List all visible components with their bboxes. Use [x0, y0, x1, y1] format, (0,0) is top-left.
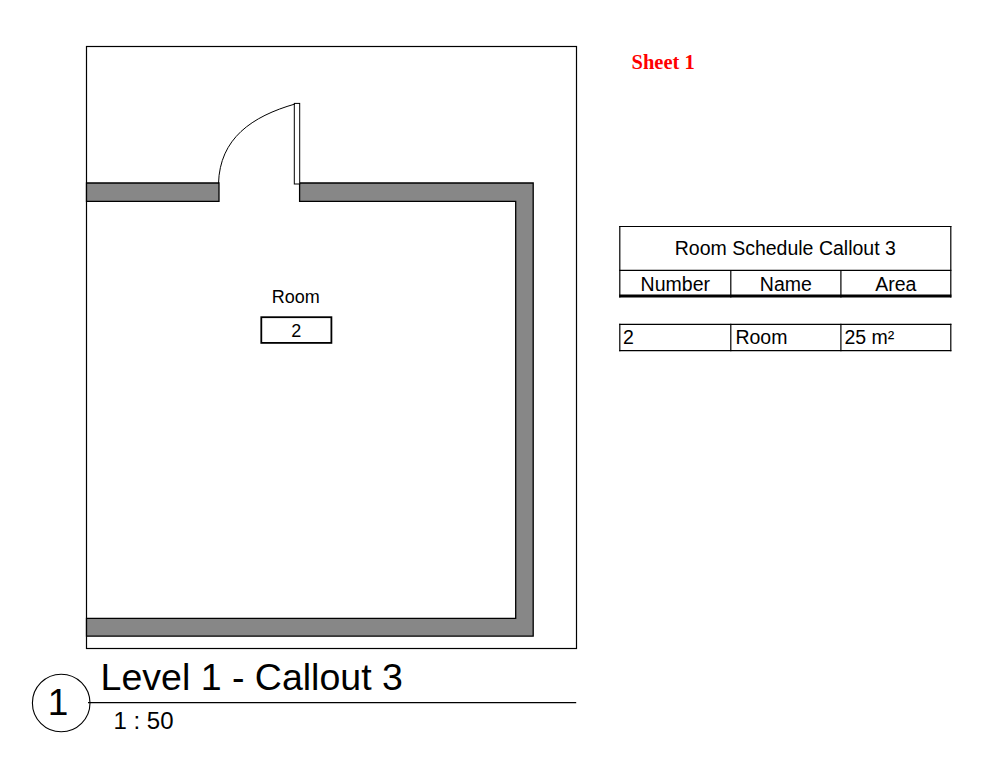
svg-text:2: 2 [291, 321, 301, 341]
svg-text:1 : 50: 1 : 50 [114, 707, 174, 734]
svg-text:25 m²: 25 m² [845, 326, 895, 348]
svg-text:Room Schedule Callout 3: Room Schedule Callout 3 [675, 237, 896, 259]
svg-text:Area: Area [875, 273, 916, 295]
svg-text:Room: Room [735, 326, 787, 348]
svg-text:Number: Number [641, 273, 711, 295]
svg-text:Sheet 1: Sheet 1 [632, 51, 695, 73]
svg-text:Level 1 - Callout 3: Level 1 - Callout 3 [101, 656, 403, 698]
svg-text:1: 1 [48, 682, 69, 723]
svg-text:2: 2 [623, 326, 634, 348]
svg-text:Room: Room [272, 287, 320, 307]
svg-text:Name: Name [760, 273, 812, 295]
